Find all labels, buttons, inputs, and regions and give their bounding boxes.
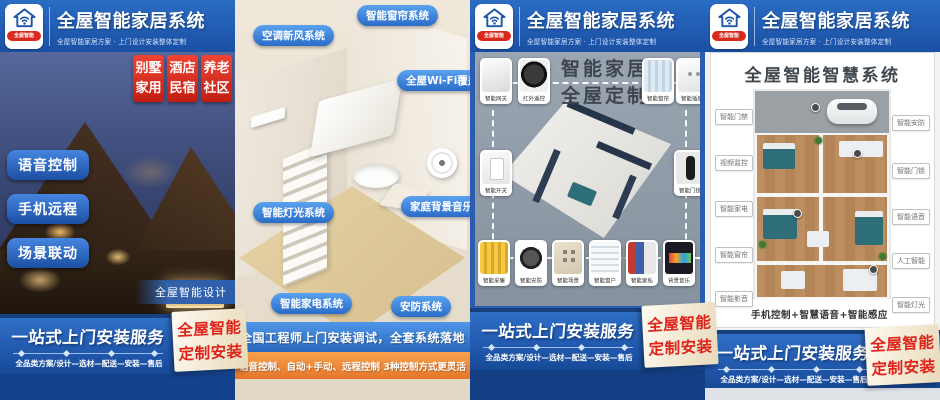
plan-floor-art xyxy=(503,100,671,238)
music-screen-icon xyxy=(665,242,693,274)
brand-badge: 全屋智能 xyxy=(477,31,511,41)
scene-tag: 养老 社区 xyxy=(201,55,232,102)
plan-label: 智能安防 xyxy=(892,115,930,131)
diamond-divider xyxy=(9,349,167,357)
install-bar: 一站式上门安装服务 全品类方案/设计—选材—配送—安装—售后 全屋智能 定制安装 xyxy=(470,308,705,370)
brand-logo: 全屋智能 xyxy=(5,4,43,49)
curtain-icon xyxy=(644,60,672,92)
feature-pill: 手机远程 xyxy=(7,194,89,224)
install-headline: 一站式上门安装服务 xyxy=(713,340,873,364)
poster-villa-home: 全屋智能 全屋智能家居系统 全屋智能家居方案 · 上门设计安装整体定制 别墅 家… xyxy=(0,0,235,400)
brand-subtitle: 全屋智能家居方案 · 上门设计安装整体定制 xyxy=(57,36,205,46)
brand-header: 全屋智能 全屋智能家居系统 全屋智能家居方案 · 上门设计安装整体定制 xyxy=(470,0,705,52)
brand-title: 全屋智能家居系统 xyxy=(527,7,675,33)
device-card-ir-remote: 红外遥控 xyxy=(518,58,550,104)
brand-logo: 全屋智能 xyxy=(710,4,748,49)
window-icon xyxy=(591,242,619,274)
feature-pill: 语音控制 xyxy=(7,150,89,180)
device-marker-dot xyxy=(869,265,878,274)
system-label: 全屋Wi-Fi覆盖 xyxy=(397,70,470,91)
install-steps: 全品类方案/设计—选材—配送—安装—售后 xyxy=(9,358,169,369)
ir-remote-icon xyxy=(520,60,548,92)
plant-art xyxy=(815,137,822,144)
floorplan-card: 全屋智能智慧系统 xyxy=(710,52,935,328)
radiator-icon xyxy=(480,242,508,274)
brand-title: 全屋智能家居系统 xyxy=(762,7,910,33)
system-label: 智能窗帘系统 xyxy=(357,5,438,26)
install-steps: 全品类方案/设计—选材—配送—安装—售后 xyxy=(479,352,639,363)
camera-icon xyxy=(517,242,545,274)
poster-device-grid: 全屋智能 全屋智能家居系统 全屋智能家居方案 · 上门设计安装整体定制 智能家 xyxy=(470,0,705,400)
poster-strip: 全屋智能 全屋智能家居系统 全屋智能家居方案 · 上门设计安装整体定制 别墅 家… xyxy=(0,0,940,400)
install-headline: 一站式上门安装服务 xyxy=(8,324,168,348)
service-bar-blue: 全国工程师上门安装调试，全套系统落地 xyxy=(235,322,470,352)
bed-art xyxy=(763,209,797,239)
brand-header: 全屋智能 全屋智能家居系统 全屋智能家居方案 · 上门设计安装整体定制 xyxy=(705,0,940,52)
photo-caption: 全屋智能设计 xyxy=(135,280,235,304)
service-bar-orange: 语音控制、自动+手动、远程控制 3种控制方式更灵活 xyxy=(235,352,470,379)
furniture-art xyxy=(807,231,829,247)
car-art xyxy=(827,99,877,124)
bed-art xyxy=(855,211,883,245)
brand-text: 全屋智能家居系统 全屋智能家居方案 · 上门设计安装整体定制 xyxy=(754,7,910,46)
gateway-icon xyxy=(482,60,510,92)
install-headline: 一站式上门安装服务 xyxy=(478,318,638,342)
villa-night-photo: 别墅 家用 酒店 民宿 养老 社区 语音控制 手机远程 场景联动 全屋智能设计 xyxy=(0,52,235,314)
scene-tag: 别墅 家用 xyxy=(133,55,164,102)
bed-art xyxy=(763,143,795,169)
feature-pill: 场景联动 xyxy=(7,238,89,268)
brand-subtitle: 全屋智能家居方案 · 上门设计安装整体定制 xyxy=(527,36,675,46)
brand-title: 全屋智能家居系统 xyxy=(57,7,205,33)
plan-label: 视频监控 xyxy=(715,155,753,171)
top-down-floorplan xyxy=(753,89,891,299)
socket-icon xyxy=(678,60,700,92)
device-grid: 智能家居 全屋定制 智能网关 红外遥控 智能窗帘 智能插座 智能开关 xyxy=(475,52,700,306)
floorplan-title: 全屋智能智慧系统 xyxy=(711,61,934,86)
brand-header: 全屋智能 全屋智能家居系统 全屋智能家居方案 · 上门设计安装整体定制 xyxy=(0,0,235,52)
brand-text: 全屋智能家居系统 全屋智能家居方案 · 上门设计安装整体定制 xyxy=(49,7,205,46)
diamond-divider xyxy=(479,343,637,351)
device-card-door-lock: 智能门锁 xyxy=(674,150,700,196)
scene-tag: 酒店 民宿 xyxy=(167,55,198,102)
brand-logo: 全屋智能 xyxy=(475,4,513,49)
system-label: 智能家电系统 xyxy=(271,293,352,314)
device-card-security: 智能安防 xyxy=(515,240,547,286)
system-label: 安防系统 xyxy=(391,296,451,317)
loft-fan-art xyxy=(427,148,457,178)
scene-tags: 别墅 家用 酒店 民宿 养老 社区 xyxy=(133,55,232,102)
brand-badge: 全屋智能 xyxy=(712,31,746,41)
plan-label: 智能窗帘 xyxy=(715,247,753,263)
device-marker-dot xyxy=(853,149,862,158)
ribbon-badge: 全屋智能 定制安装 xyxy=(641,302,718,368)
plan-label: 智能门锁 xyxy=(892,163,930,179)
device-card-switch: 智能开关 xyxy=(480,150,512,196)
brand-subtitle: 全屋智能家居方案 · 上门设计安装整体定制 xyxy=(762,36,910,46)
grid-title: 智能家居 全屋定制 xyxy=(559,56,651,109)
system-label: 空调新风系统 xyxy=(253,25,334,46)
device-card-furniture: 智能家私 xyxy=(626,240,658,286)
install-bar: 一站式上门安装服务 全品类方案/设计—选材—配送—安装—售后 全屋智能 定制安装 xyxy=(705,330,940,388)
door-lock-icon xyxy=(676,152,700,184)
device-marker-dot xyxy=(793,209,802,218)
feature-pills: 语音控制 手机远程 场景联动 xyxy=(7,150,89,282)
plan-label: 智能灯光 xyxy=(892,297,930,313)
system-label: 家庭背景音乐 xyxy=(401,196,470,217)
device-card-curtain: 智能窗帘 xyxy=(642,58,674,104)
ribbon-badge: 全屋智能 定制安装 xyxy=(171,308,248,372)
plan-label: 智能影音 xyxy=(715,291,753,307)
plan-label: 智能门禁 xyxy=(715,109,753,125)
device-card-socket: 智能插座 xyxy=(676,58,700,104)
house-wifi-icon xyxy=(482,7,507,30)
plan-label: 智能家电 xyxy=(715,201,753,217)
furniture-art xyxy=(781,271,805,289)
plant-art xyxy=(879,253,886,260)
plant-art xyxy=(759,241,766,248)
house-wifi-icon xyxy=(12,7,37,30)
scene-panel-icon xyxy=(554,242,582,274)
brand-text: 全屋智能家居系统 全屋智能家居方案 · 上门设计安装整体定制 xyxy=(519,7,675,46)
device-card-window: 智能窗户 xyxy=(589,240,621,286)
plan-label: 智能语音 xyxy=(892,209,930,225)
footer-base-strip xyxy=(705,388,940,400)
wall-switch-icon xyxy=(482,152,510,184)
device-marker-dot xyxy=(811,103,820,112)
loft-bathtub-art xyxy=(353,164,399,188)
ribbon-badge: 全屋智能 定制安装 xyxy=(865,324,940,386)
install-bar: 一站式上门安装服务 全品类方案/设计—选材—配送—安装—售后 全屋智能 定制安装 xyxy=(0,314,235,374)
control-modes-caption: 手机控制+智慧语音+智能感应 xyxy=(751,307,888,321)
furniture-icon xyxy=(628,242,656,274)
system-label: 智能灯光系统 xyxy=(253,202,334,223)
device-card-heating: 智能采暖 xyxy=(478,240,510,286)
apartment-3d-plan xyxy=(503,100,671,238)
device-card-gateway: 智能网关 xyxy=(480,58,512,104)
isometric-loft-illustration xyxy=(235,0,470,322)
device-card-scene-panel: 智能场景 xyxy=(552,240,584,286)
install-steps: 全品类方案/设计—选材—配送—安装—售后 xyxy=(714,374,874,385)
footer-base-strip xyxy=(470,370,705,400)
brand-badge: 全屋智能 xyxy=(7,31,41,41)
poster-floorplan-system: 全屋智能 全屋智能家居系统 全屋智能家居方案 · 上门设计安装整体定制 全屋智能… xyxy=(705,0,940,400)
poster-loft-systems: 空调新风系统 智能窗帘系统 全屋Wi-Fi覆盖 智能灯光系统 家庭背景音乐 智能… xyxy=(235,0,470,400)
device-card-music: 背景音乐 xyxy=(663,240,695,286)
diamond-divider xyxy=(714,365,872,373)
house-wifi-icon xyxy=(717,7,742,30)
plan-label: 人工智能 xyxy=(892,253,930,269)
